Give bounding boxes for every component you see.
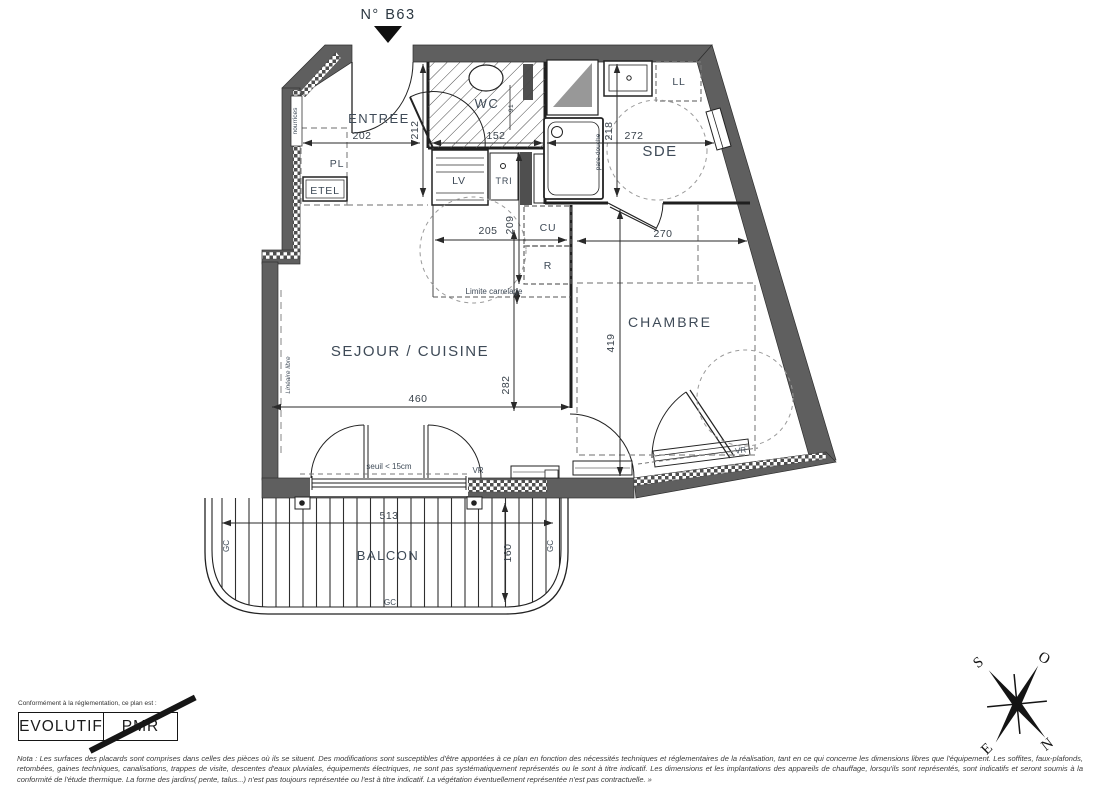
floorplan-drawing: N° B63 [0,0,1101,800]
dim-sde-profondeur: 218 [603,121,615,140]
dim-cuisine-largeur: 205 [478,225,497,237]
radiators [511,461,632,478]
dim-wc-porte: 91 [508,104,515,112]
bed-zone [577,283,755,455]
dim-entree-profondeur: 212 [409,120,421,139]
french-door-opening [310,475,468,496]
label-lave-linge: LL [672,76,685,88]
dim-sde-largeur: 272 [624,130,643,142]
floorplan-page: N° B63 [0,0,1101,800]
insulation-step [262,252,300,259]
compass-letter-o: O [1035,649,1053,668]
sde-door-swing [656,203,663,229]
room-label-balcon: BALCON [357,548,419,563]
dim-entree-largeur: 202 [352,130,371,142]
french-door-left-swing [311,425,364,478]
entry-arrow-icon [374,26,402,43]
label-gc-left: GC [222,540,231,552]
label-gc-right: GC [546,540,555,552]
dim-sejour-largeur: 460 [408,393,427,405]
label-vr-chambre: VR [735,445,747,455]
compass-letter-s: S [970,654,986,672]
shower-drain [552,127,563,138]
wall-left-lower [262,262,278,480]
dim-cuisine-profondeur: 209 [504,215,516,234]
room-label-chambre: CHAMBRE [628,314,712,330]
room-label-entree: ENTREE [348,111,410,126]
label-cuisson: CU [540,222,557,234]
compass-ray-west [1014,666,1039,706]
label-tri: TRI [496,176,513,186]
label-etel: ETEL [310,185,339,197]
room-label-sejour: SEJOUR / CUISINE [331,343,489,360]
dim-balcon-largeur: 513 [379,510,398,522]
duct-kitchen [520,152,532,205]
label-lave-vaisselle: LV [452,175,466,187]
stamp-evolutif: EVOLUTIF [18,712,104,741]
dim-sejour-profondeur: 282 [500,375,512,394]
sde-door-leaf2 [610,207,658,231]
dim-balcon-profondeur: 160 [502,543,514,562]
label-seuil: seuil < 15cm [366,462,411,471]
compass-ray-east [996,702,1021,742]
balcony-bracket-right-dot [471,500,477,506]
unit-number-label: N° B63 [360,7,415,23]
label-vr-sejour: VR [472,466,483,475]
balcony-bracket-left-dot [299,500,305,506]
stamp-boxes: EVOLUTIF PMR [18,712,178,741]
dim-chambre-profondeur: 419 [605,333,617,352]
stamp-caption: Conformément à la réglementation, ce pla… [18,700,178,707]
sde-door-leaf [608,203,656,228]
label-pare-douche: pare-douche [595,133,602,170]
dim-chambre-largeur: 270 [653,228,672,240]
pmr-circle-chambre [697,350,793,446]
duct-panel [534,154,544,203]
label-placard: PL [330,158,344,170]
nota-text: Nota : Les surfaces des placards sont co… [17,754,1083,785]
dim-wc-largeur: 152 [486,130,505,142]
sill-hatch-bottom [468,480,547,492]
label-refrigerateur: R [544,260,552,272]
sill-detail [545,470,558,478]
label-nourrices: nourrices [292,107,299,134]
toilet-icon [469,65,503,91]
regulation-stamp: Conformément à la réglementation, ce pla… [18,700,178,741]
room-label-sde: SDE [642,143,677,160]
label-limite-carrelage: Limite carrelage [466,287,523,296]
label-gc-bottom: GC [384,598,396,607]
label-lineaire-libre: Linéaire libre [285,356,292,394]
compass-rose: N S O E [970,649,1057,758]
compass-letter-n: N [1038,735,1057,754]
room-label-wc: WC [475,96,500,111]
